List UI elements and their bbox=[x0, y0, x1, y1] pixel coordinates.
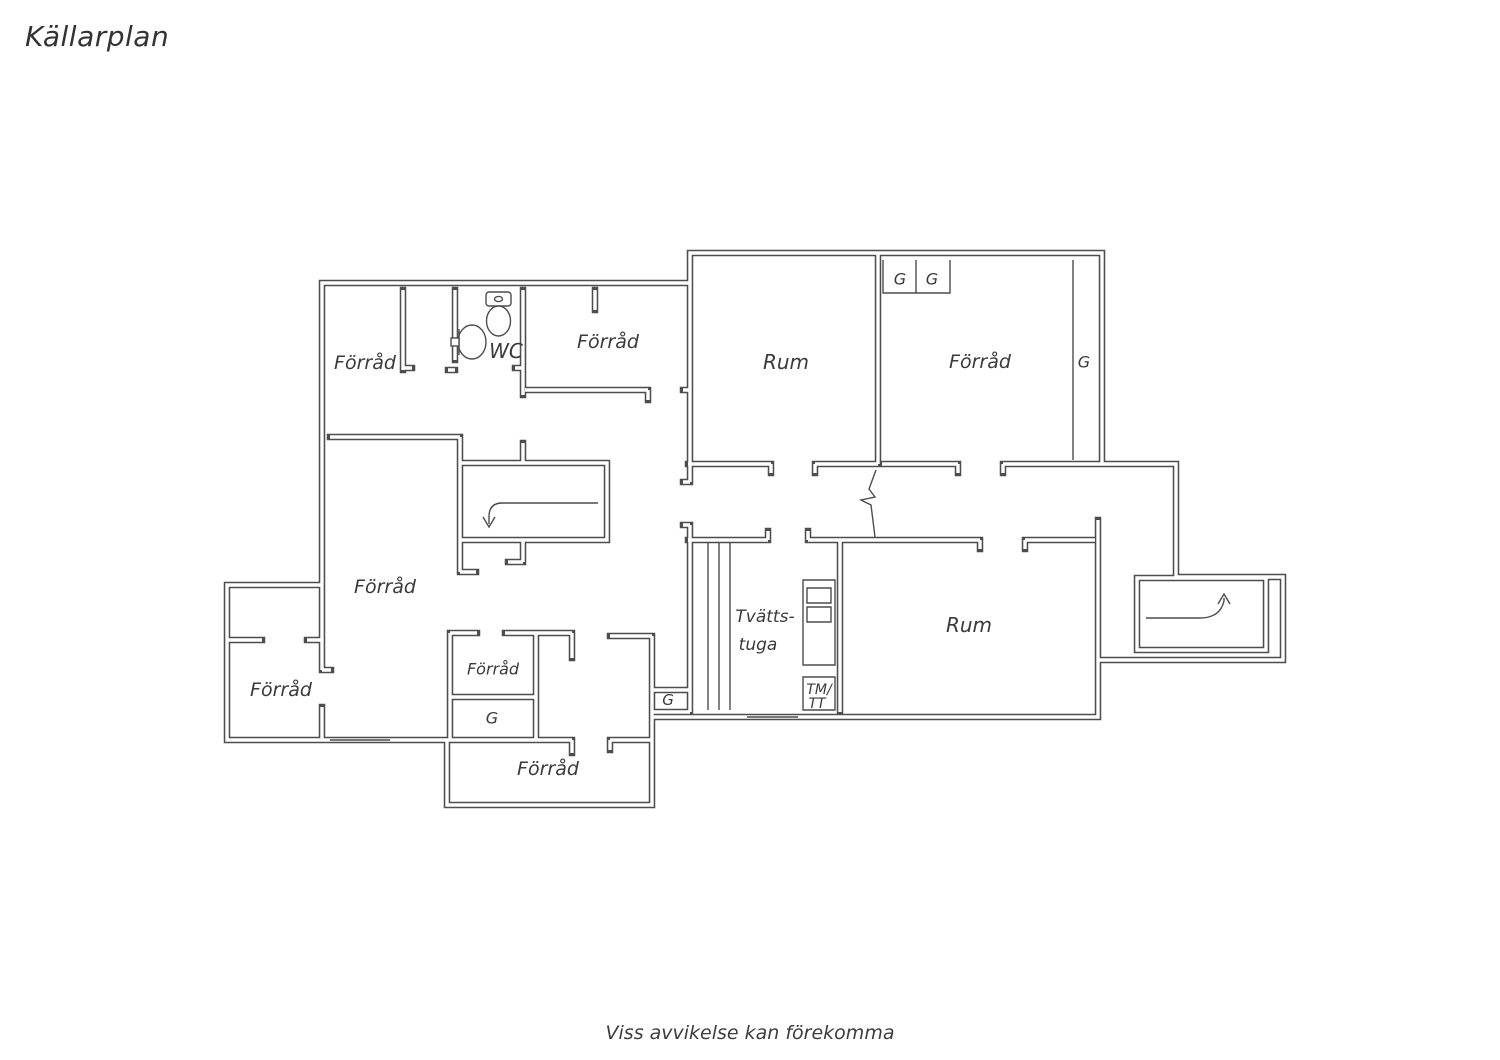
stairs-down-arrow-icon bbox=[483, 503, 598, 527]
disclaimer-text: Viss avvikelse kan förekomma bbox=[0, 1022, 1500, 1044]
tm-tt-cabinet bbox=[803, 677, 835, 710]
opening-break-line bbox=[861, 470, 876, 537]
floorplan-page: { "page": { "title": "Källarplan", "foot… bbox=[0, 0, 1500, 1060]
floorplan-drawing bbox=[0, 0, 1500, 1060]
toilet-icon bbox=[486, 292, 511, 336]
walls bbox=[227, 253, 1283, 805]
laundry-shaft-lines bbox=[708, 543, 730, 710]
closet-outlines bbox=[883, 260, 1073, 460]
entry-stairs-up-arrow-icon bbox=[1146, 594, 1230, 618]
laundry-counter bbox=[803, 580, 835, 665]
window-lines bbox=[330, 717, 798, 740]
